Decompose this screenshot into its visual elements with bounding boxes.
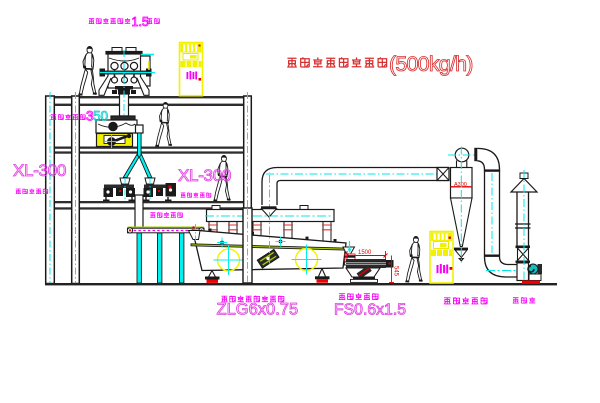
svg-text:1500: 1500 (358, 250, 372, 256)
svg-text:50: 50 (93, 109, 108, 124)
svg-text:XL-300: XL-300 (13, 161, 66, 180)
svg-text:ZLG6x0.75: ZLG6x0.75 (217, 301, 299, 319)
svg-text:1.5: 1.5 (132, 15, 149, 29)
svg-text:545: 545 (393, 266, 399, 277)
svg-text:FS0.6x1.5: FS0.6x1.5 (334, 302, 406, 319)
svg-text:(500kg/h): (500kg/h) (389, 52, 473, 76)
svg-text:A300: A300 (454, 182, 467, 188)
svg-text:XL-300: XL-300 (178, 166, 231, 185)
